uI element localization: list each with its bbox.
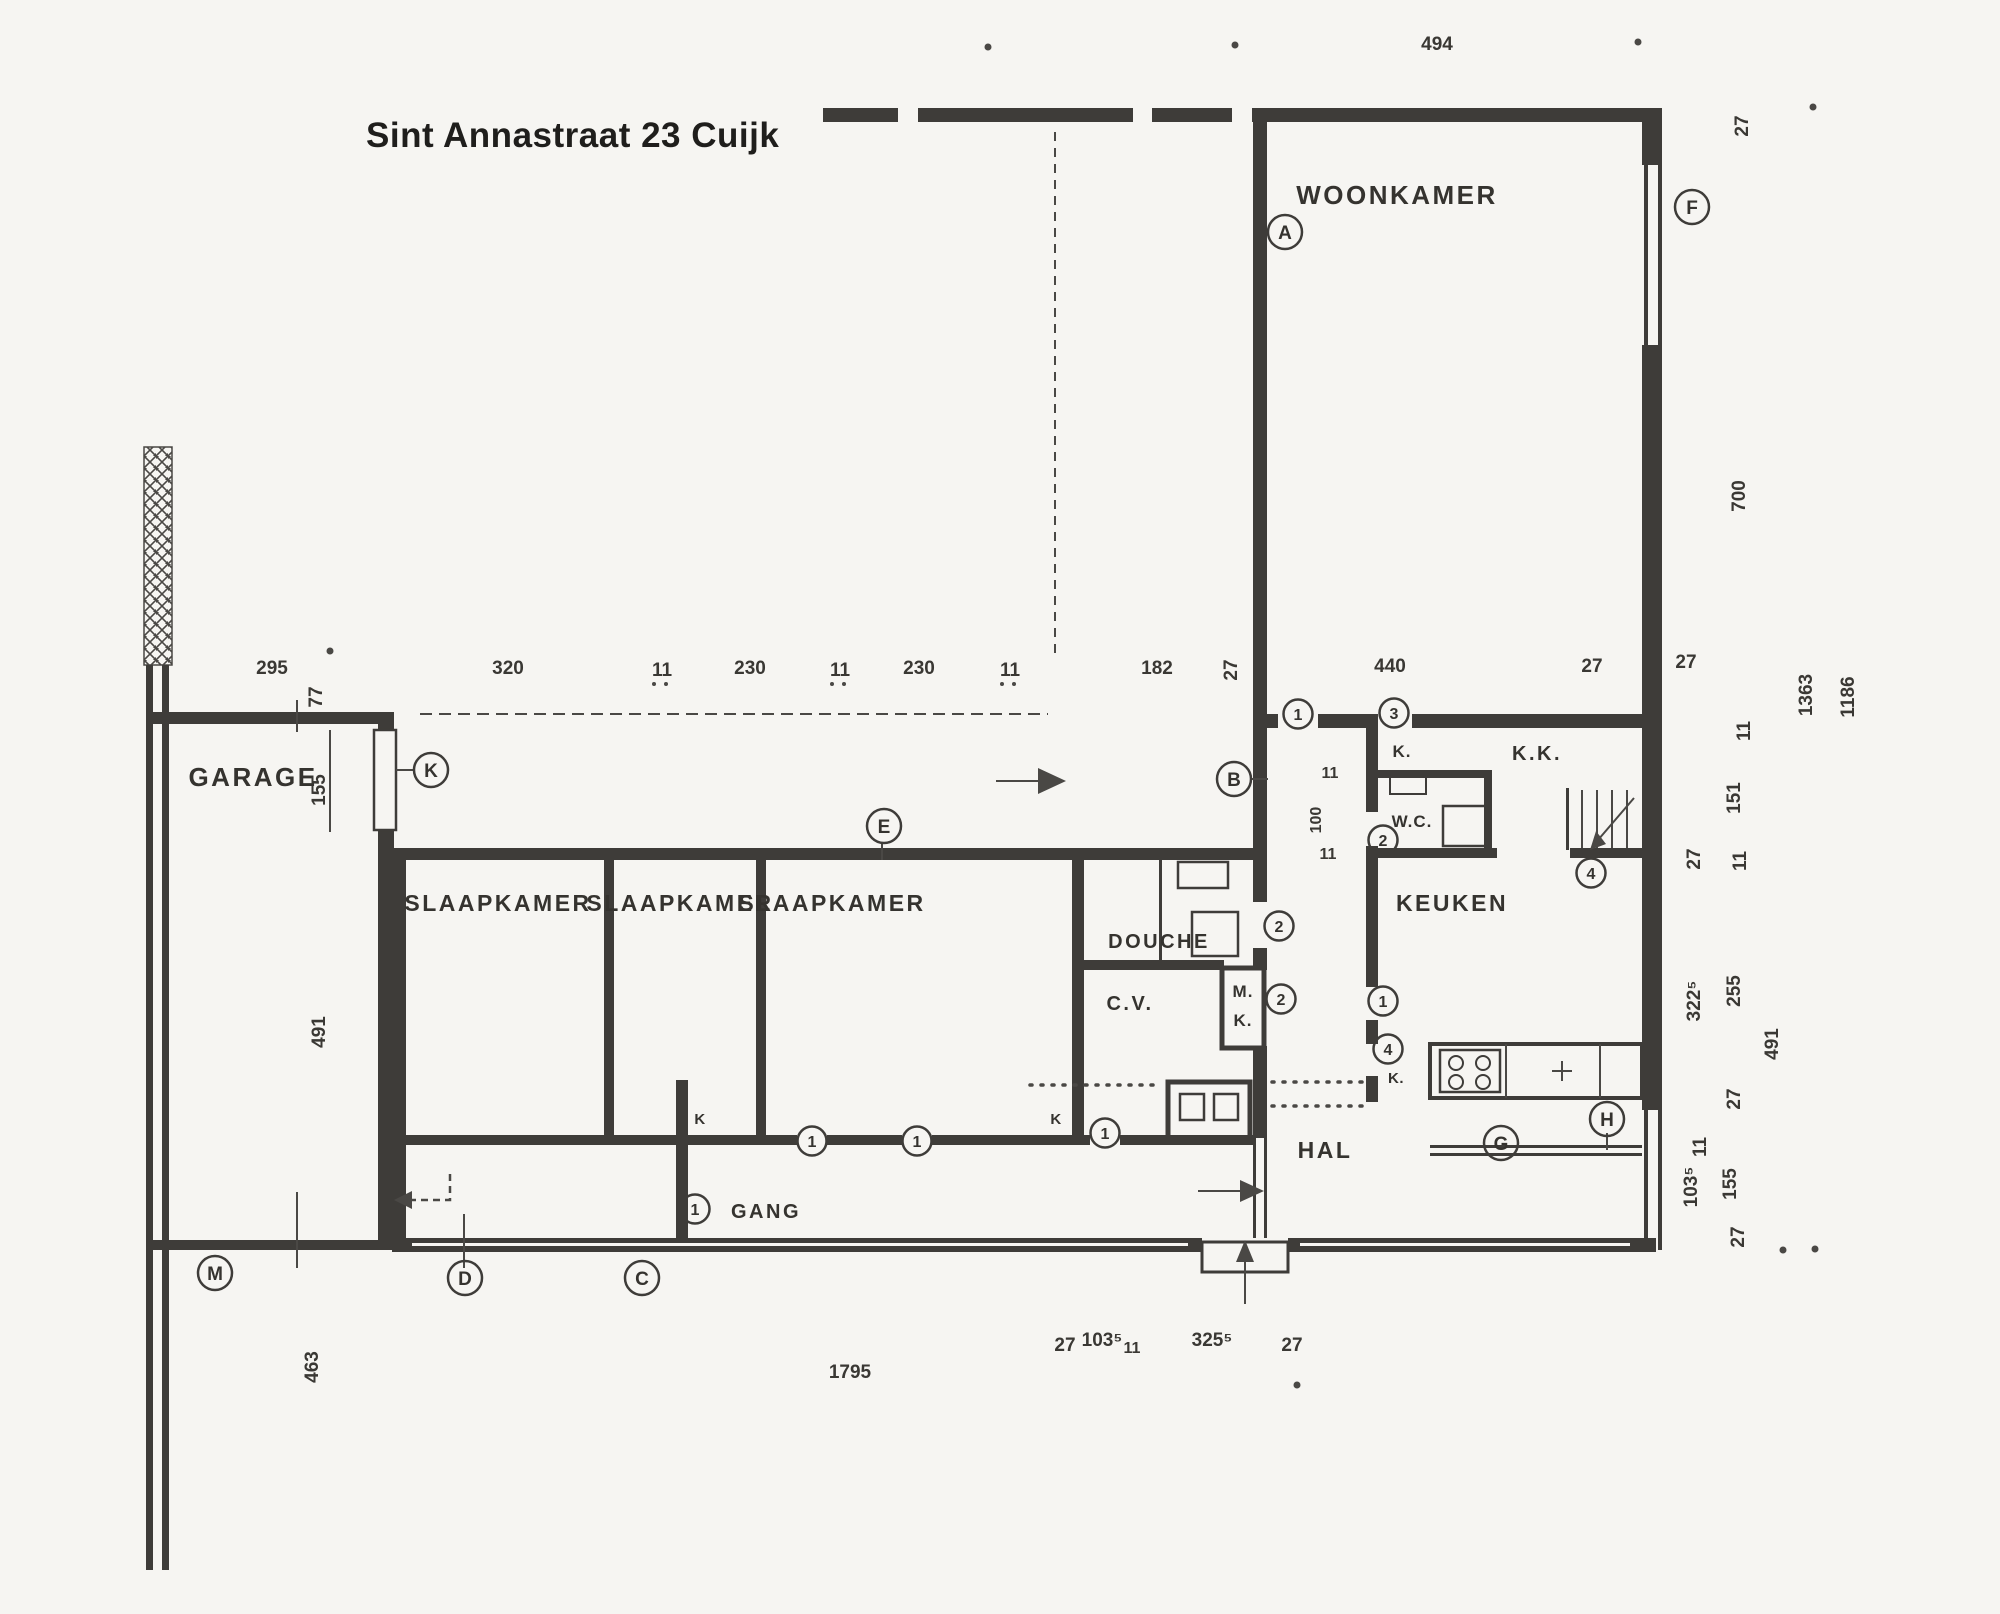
dim-11-wc-a: 11 xyxy=(1322,765,1339,782)
label-kast-closet: K. xyxy=(1393,742,1412,761)
dim-155-garage: 155 xyxy=(309,774,330,806)
sink-icon xyxy=(1552,1061,1572,1081)
svg-text:B: B xyxy=(1227,770,1241,791)
marker-b: B xyxy=(1217,762,1251,796)
dim-325-5: 325⁵ xyxy=(1192,1330,1233,1351)
dim-463: 463 xyxy=(302,1351,323,1383)
entrance-porch xyxy=(1202,1240,1288,1304)
interior-walls xyxy=(392,120,1654,1238)
floorplan-drawing: Sint Annastraat 23 Cuijk xyxy=(0,0,2000,1614)
marker-h: H xyxy=(1590,1102,1624,1136)
label-garage: GARAGE xyxy=(188,762,317,792)
door-1-cv: 1 xyxy=(1091,1119,1120,1148)
label-slaapkamer-3: SLAAPKAMER xyxy=(738,890,925,916)
label-kast-keuken: K. xyxy=(1388,1070,1404,1087)
dim-11-s: 11 xyxy=(1124,1340,1141,1357)
label-wc: W.C. xyxy=(1392,812,1433,831)
door-4-keuken-kast: 4 xyxy=(1374,1035,1403,1064)
door-2-mk: 2 xyxy=(1267,985,1296,1014)
svg-text:2: 2 xyxy=(1379,833,1388,850)
marker-g: G xyxy=(1484,1126,1518,1160)
door-1-slaapkamer2: 1 xyxy=(798,1127,827,1156)
dim-27-wall: 27 xyxy=(1221,659,1242,680)
dim-103-5-s: 103⁵ xyxy=(1082,1330,1123,1351)
svg-text:H: H xyxy=(1600,1110,1614,1131)
dim-27-right-top: 27 xyxy=(1581,656,1602,677)
label-slaapkamer-1: SLAAPKAMER xyxy=(404,890,591,916)
garage-door xyxy=(374,730,396,830)
windows xyxy=(412,165,1662,1250)
page-title: Sint Annastraat 23 Cuijk xyxy=(366,116,779,155)
dim-27-s1: 27 xyxy=(1054,1335,1075,1356)
door-2-douche: 2 xyxy=(1265,912,1294,941)
corridor-arrow xyxy=(996,768,1066,794)
douche-shelf xyxy=(1178,862,1228,888)
svg-text:1: 1 xyxy=(1101,1126,1110,1143)
dim-11-wc-b: 11 xyxy=(1320,846,1337,863)
label-kast-sk3: K xyxy=(1050,1111,1061,1128)
svg-text:M: M xyxy=(207,1264,223,1285)
dim-1363: 1363 xyxy=(1796,674,1817,716)
svg-text:1: 1 xyxy=(1379,994,1388,1011)
dim-11-b: 11 xyxy=(830,660,851,681)
dim-155-e: 155 xyxy=(1720,1168,1741,1200)
dim-11-c: 11 xyxy=(1000,660,1021,681)
door-1-keuken: 1 xyxy=(1369,987,1398,1016)
door-3-kast: 3 xyxy=(1380,699,1409,728)
svg-text:4: 4 xyxy=(1384,1042,1393,1059)
marker-e: E xyxy=(867,809,901,843)
svg-text:4: 4 xyxy=(1587,866,1596,883)
door-1-woonkamer: 1 xyxy=(1284,700,1313,729)
dim-11-a: 11 xyxy=(652,660,673,681)
label-kast-sk2: K xyxy=(694,1111,705,1128)
dim-1186: 1186 xyxy=(1838,676,1859,717)
dim-1795: 1795 xyxy=(829,1362,872,1383)
guide-lines xyxy=(420,132,1364,1106)
svg-text:D: D xyxy=(458,1269,472,1290)
dim-255: 255 xyxy=(1724,975,1745,1007)
label-gang: GANG xyxy=(731,1201,801,1223)
dim-151: 151 xyxy=(1724,782,1745,814)
dimension-labels: 494 295 77 320 11 230 11 230 11 182 27 4… xyxy=(256,34,1859,1383)
label-mk-k: K. xyxy=(1234,1011,1253,1030)
svg-text:1: 1 xyxy=(1294,707,1303,724)
marker-a: A xyxy=(1268,215,1302,249)
dim-27-s2: 27 xyxy=(1281,1335,1302,1356)
dim-11-e2: 11 xyxy=(1730,851,1751,872)
marker-c: C xyxy=(625,1261,659,1295)
dim-182: 182 xyxy=(1141,658,1173,679)
dim-100: 100 xyxy=(1308,807,1325,834)
svg-text:2: 2 xyxy=(1277,992,1286,1009)
dim-11-e3: 11 xyxy=(1690,1137,1711,1158)
svg-text:1: 1 xyxy=(691,1202,700,1219)
svg-text:E: E xyxy=(878,817,891,838)
dim-491-e: 491 xyxy=(1762,1028,1783,1060)
dim-320: 320 xyxy=(492,658,524,679)
dim-230-a: 230 xyxy=(734,658,766,679)
marker-f: F xyxy=(1675,190,1709,224)
dim-27-e3: 27 xyxy=(1724,1088,1745,1109)
dim-230-b: 230 xyxy=(903,658,935,679)
dim-11-e1: 11 xyxy=(1734,721,1755,742)
dim-103-5-e: 103⁵ xyxy=(1681,1167,1702,1208)
dim-77: 77 xyxy=(306,686,327,707)
wc-niche xyxy=(1390,776,1426,794)
kitchen-counter xyxy=(1430,1044,1642,1098)
svg-text:2: 2 xyxy=(1275,919,1284,936)
property-boundary xyxy=(144,447,172,1570)
label-douche: DOUCHE xyxy=(1108,931,1210,953)
svg-text:C: C xyxy=(635,1269,649,1290)
mk-closet xyxy=(1222,968,1264,1048)
floorplan-page: Sint Annastraat 23 Cuijk xyxy=(0,0,2000,1614)
dim-440: 440 xyxy=(1374,656,1406,677)
door-1-slaapkamer3: 1 xyxy=(903,1127,932,1156)
label-cv: C.V. xyxy=(1106,993,1153,1015)
dim-27-e1: 27 xyxy=(1675,652,1696,673)
label-woonkamer: WOONKAMER xyxy=(1296,180,1498,210)
dim-27-ne: 27 xyxy=(1732,115,1753,136)
dim-491-w: 491 xyxy=(309,1016,330,1048)
fixtures xyxy=(374,730,1642,1304)
dim-295: 295 xyxy=(256,658,288,679)
dim-494: 494 xyxy=(1421,34,1453,55)
svg-text:F: F xyxy=(1686,198,1698,219)
stove-icon xyxy=(1440,1050,1500,1092)
dim-322-5: 322⁵ xyxy=(1684,981,1705,1022)
svg-text:1: 1 xyxy=(913,1134,922,1151)
label-mk-m: M. xyxy=(1233,982,1254,1001)
utility-cabinet xyxy=(1168,1082,1250,1138)
svg-text:A: A xyxy=(1278,223,1292,244)
marker-k: K xyxy=(414,753,448,787)
door-4-stairs: 4 xyxy=(1577,859,1606,888)
stairs xyxy=(1566,788,1634,850)
svg-text:1: 1 xyxy=(808,1134,817,1151)
svg-text:K: K xyxy=(424,761,438,782)
dim-700: 700 xyxy=(1729,480,1750,512)
label-hal: HAL xyxy=(1298,1137,1353,1163)
wc-fixture xyxy=(1443,806,1487,846)
svg-text:G: G xyxy=(1494,1134,1509,1155)
section-markers: A F E B K M D C G H xyxy=(198,190,1709,1295)
dim-27-e2: 27 xyxy=(1684,848,1705,869)
svg-text:3: 3 xyxy=(1390,706,1399,723)
label-keuken: KEUKEN xyxy=(1396,890,1508,916)
dim-27-e4: 27 xyxy=(1728,1226,1749,1247)
exterior-walls xyxy=(148,108,1662,1252)
label-kk: K.K. xyxy=(1512,743,1562,765)
marker-m: M xyxy=(198,1256,232,1290)
